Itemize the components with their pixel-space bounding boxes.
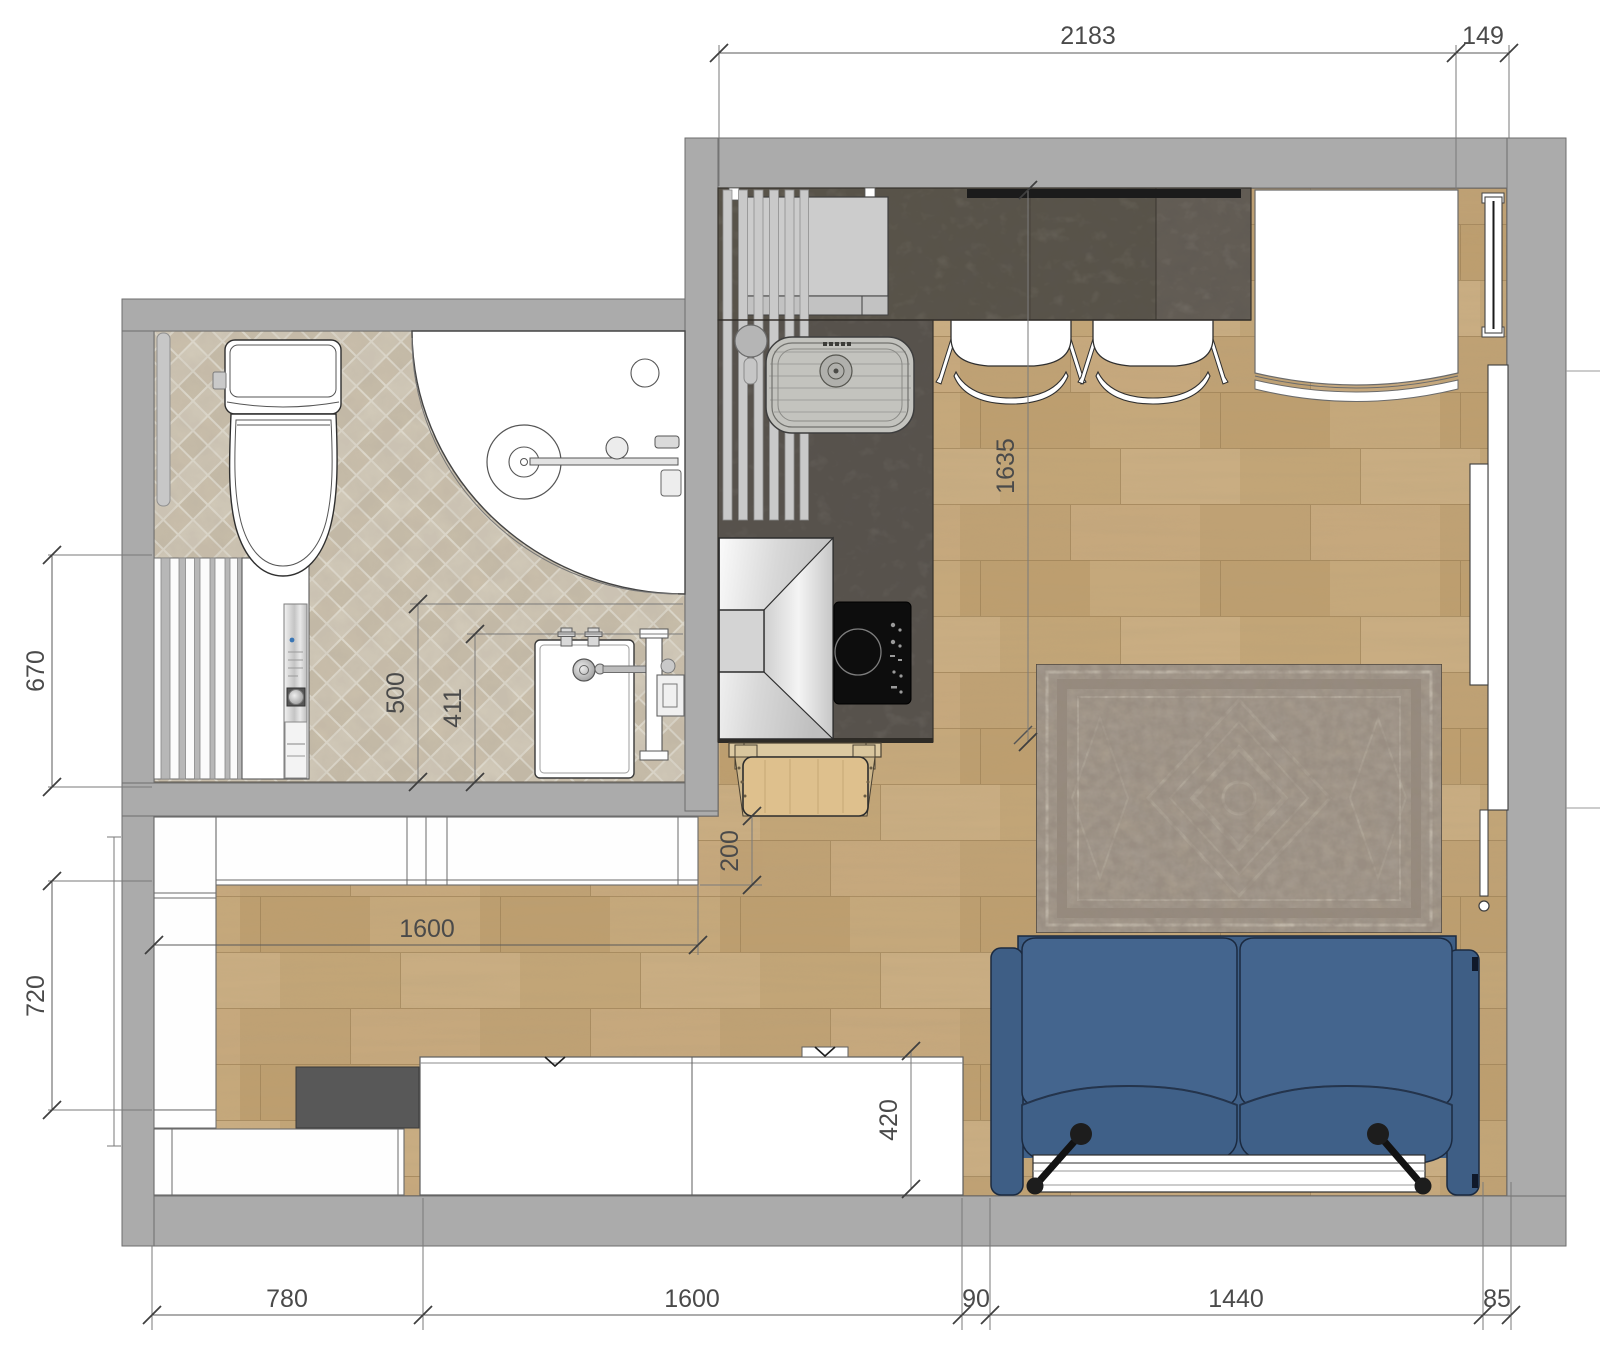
svg-text:720: 720 — [22, 975, 50, 1017]
svg-text:1600: 1600 — [664, 1285, 720, 1313]
svg-text:1600: 1600 — [399, 915, 455, 943]
svg-text:780: 780 — [266, 1285, 308, 1313]
svg-text:90: 90 — [962, 1285, 990, 1313]
svg-text:2183: 2183 — [1060, 22, 1116, 50]
svg-text:200: 200 — [716, 830, 744, 872]
svg-text:1440: 1440 — [1208, 1285, 1264, 1313]
svg-text:149: 149 — [1462, 22, 1504, 50]
svg-text:85: 85 — [1483, 1285, 1511, 1313]
svg-text:411: 411 — [439, 688, 467, 728]
svg-text:1635: 1635 — [992, 438, 1020, 494]
svg-text:420: 420 — [875, 1099, 903, 1141]
svg-text:670: 670 — [22, 650, 50, 692]
svg-text:500: 500 — [382, 672, 410, 714]
